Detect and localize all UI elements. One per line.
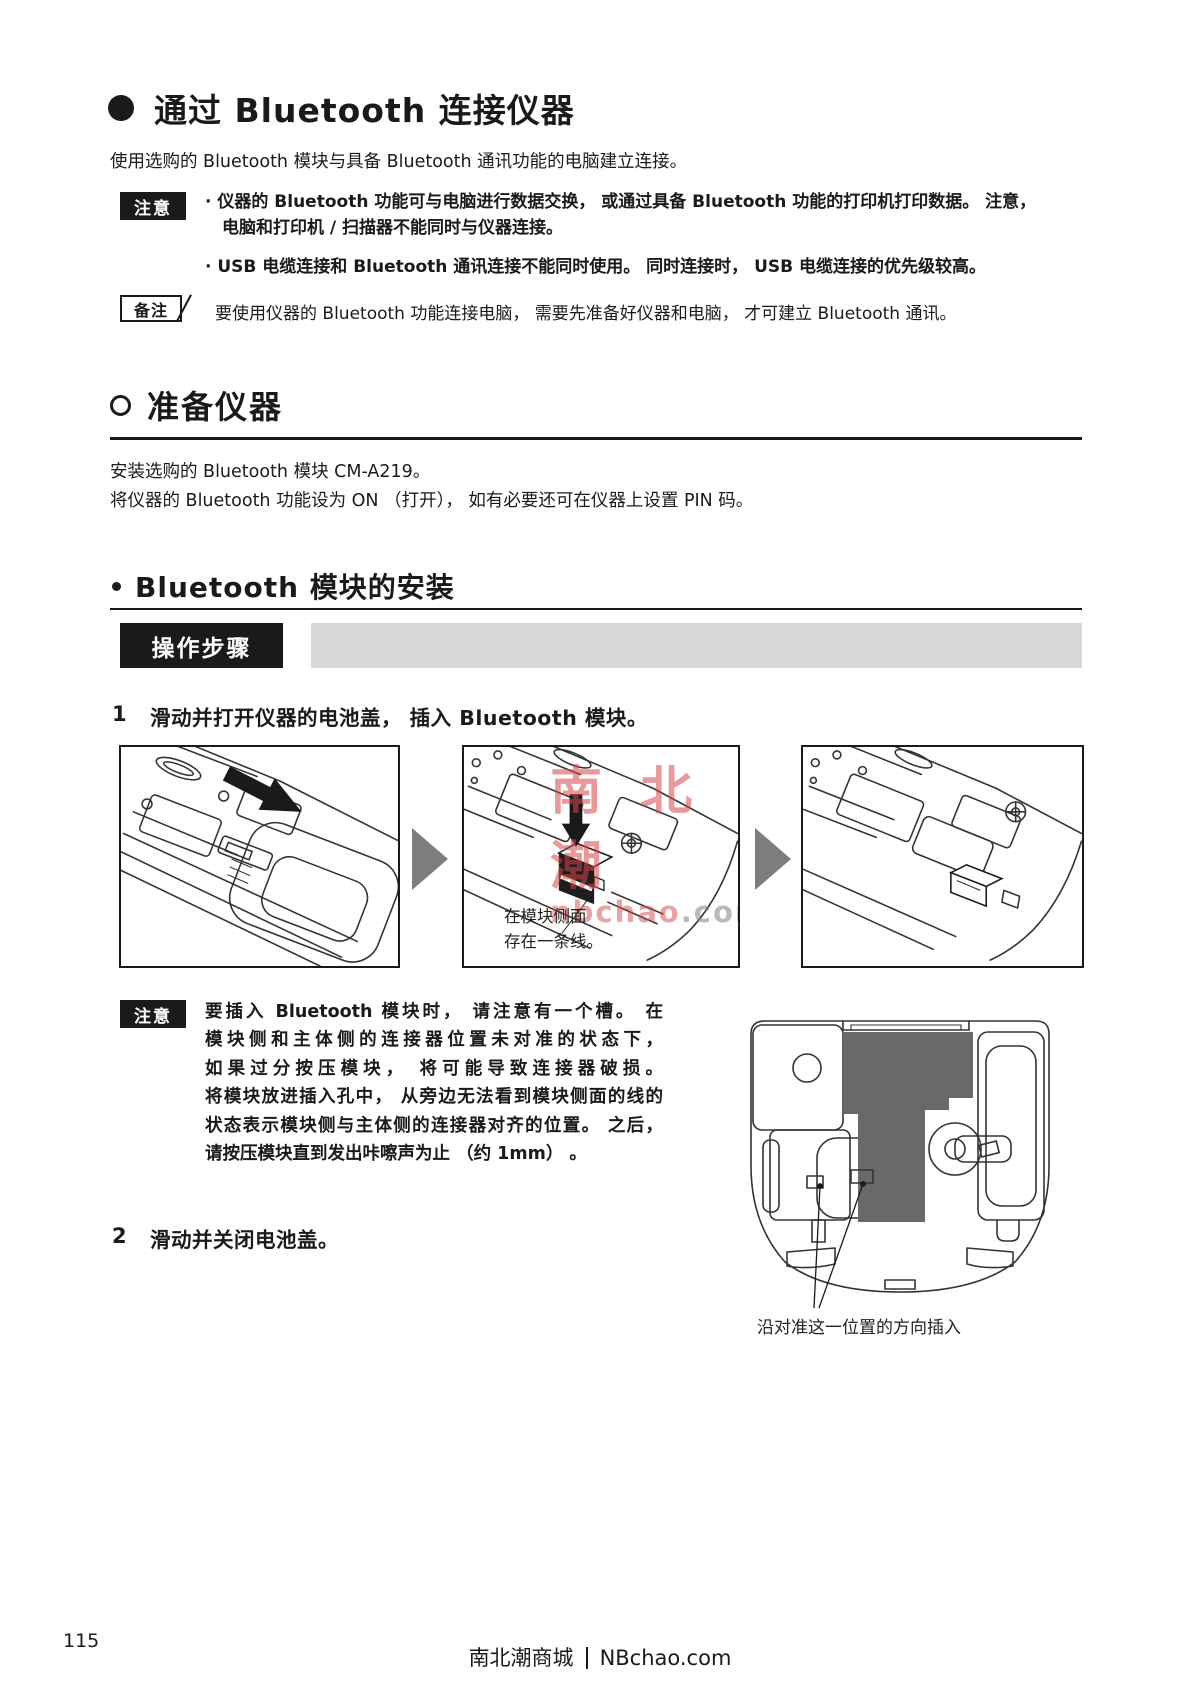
caution2-label: 注意 — [120, 1000, 186, 1028]
section-title: 准备仪器 — [147, 382, 283, 428]
bluetooth-module — [559, 843, 612, 904]
caution-bullet1-line2: 电脑和打印机 / 扫描器不能同时与仪器连接。 — [222, 216, 563, 241]
figure-panel-1 — [119, 745, 400, 968]
subsection-rule — [110, 608, 1082, 610]
device-slide-cover-illustration — [121, 747, 398, 966]
page-title: 通过 Bluetooth 连接仪器 — [154, 84, 575, 132]
section-bullet-icon — [108, 95, 134, 121]
lock-keyhole-shape — [929, 1123, 1011, 1175]
footer-site-url: NBchao.com — [600, 1646, 732, 1670]
insert-direction-arrow-icon — [562, 794, 590, 847]
section-heading-prepare: 准备仪器 — [110, 382, 283, 428]
circle-marker-icon — [110, 395, 131, 416]
caution-bullet2: · USB 电缆连接和 Bluetooth 通讯连接不能同时使用。 同时连接时，… — [205, 255, 1105, 280]
step2-text: 滑动并关闭电池盖。 — [150, 1223, 339, 1253]
caution2-line: 模块侧和主体侧的连接器位置未对准的状态下， — [205, 1026, 663, 1054]
battery-compartment-top-view-illustration — [743, 1018, 1058, 1310]
footer-divider — [586, 1647, 588, 1669]
caution-label: 注意 — [120, 192, 186, 220]
section-rule — [110, 437, 1082, 440]
memo-text: 要使用仪器的 Bluetooth 功能连接电脑， 需要先准备好仪器和电脑， 才可… — [215, 299, 1115, 324]
intro-text: 使用选购的 Bluetooth 模块与具备 Bluetooth 通讯功能的电脑建… — [110, 148, 687, 173]
caution2-line: 状态表示模块侧与主体侧的连接器对齐的位置。 之后， — [205, 1112, 663, 1140]
figure-panel-2: 南 北 潮 nbchao.com 在模块侧面 存在一条线。 — [462, 745, 740, 968]
bluetooth-module-seated — [951, 865, 1002, 906]
step2-number: 2 — [112, 1224, 127, 1248]
step1-text: 滑动并打开仪器的电池盖， 插入 Bluetooth 模块。 — [150, 701, 648, 731]
figure-panel-3 — [801, 745, 1084, 968]
subsection-heading-install: Bluetooth 模块的安装 — [112, 566, 455, 606]
subsection-title: Bluetooth 模块的安装 — [135, 566, 455, 606]
device-module-seated-illustration — [803, 747, 1082, 966]
caution2-line: 如果过分按压模块， 将可能导致连接器破损。 — [205, 1055, 663, 1083]
slide-direction-arrow-icon — [218, 758, 309, 828]
module-slot-dark-area — [843, 1032, 973, 1222]
step1-number: 1 — [112, 702, 127, 726]
insert-direction-caption: 沿对准这一位置的方向插入 — [757, 1313, 961, 1338]
module-line-caption: 在模块侧面 存在一条线。 — [504, 904, 603, 954]
procedure-gray-bar — [311, 623, 1082, 668]
caution2-line: 将模块放进插入孔中， 从旁边无法看到模块侧面的线的 — [205, 1083, 663, 1111]
caution2-text: 要插入 Bluetooth 模块时， 请注意有一个槽。 在 模块侧和主体侧的连接… — [205, 998, 663, 1168]
prepare-line1: 安装选购的 Bluetooth 模块 CM-A219。 — [110, 458, 430, 483]
prepare-line2: 将仪器的 Bluetooth 功能设为 ON （打开）， 如有必要还可在仪器上设… — [110, 487, 753, 512]
footer-site: 南北潮商城NBchao.com — [0, 1642, 1200, 1672]
memo-label: 备注 — [120, 295, 182, 322]
page-title-row: 通过 Bluetooth 连接仪器 — [108, 84, 575, 132]
small-bullet-icon — [112, 582, 121, 591]
footer-site-name: 南北潮商城 — [469, 1646, 574, 1670]
next-step-arrow-icon — [412, 828, 448, 890]
procedure-label: 操作步骤 — [120, 623, 283, 668]
caution2-line: 请按压模块直到发出咔嚓声为止 （约 1mm） 。 — [205, 1140, 663, 1168]
manual-page: 通过 Bluetooth 连接仪器 使用选购的 Bluetooth 模块与具备 … — [0, 0, 1200, 1694]
next-step-arrow-icon — [755, 828, 791, 890]
caution-bullet1-line1: · 仪器的 Bluetooth 功能可与电脑进行数据交换， 或通过具备 Blue… — [205, 190, 1105, 215]
caution2-line: 要插入 Bluetooth 模块时， 请注意有一个槽。 在 — [205, 998, 663, 1026]
